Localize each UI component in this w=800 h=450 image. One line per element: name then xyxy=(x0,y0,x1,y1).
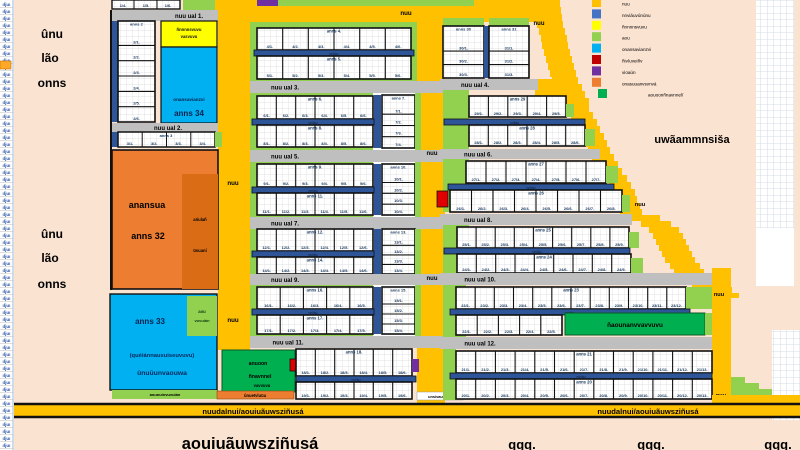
svg-text:ıİjuı: ıİjuı xyxy=(3,260,11,266)
svg-text:21/1.: 21/1. xyxy=(462,367,471,372)
svg-text:26/6.: 26/6. xyxy=(564,206,573,211)
svg-text:25/2.: 25/2. xyxy=(481,242,490,247)
svg-text:4/5.: 4/5. xyxy=(369,44,376,49)
svg-text:1/4.: 1/4. xyxy=(120,3,127,8)
svg-text:14/1.: 14/1. xyxy=(262,268,271,273)
svg-text:ıİjuı: ıİjuı xyxy=(3,274,11,280)
svg-text:25/6.: 25/6. xyxy=(558,242,567,247)
svg-text:10/2.: 10/2. xyxy=(394,187,403,192)
svg-text:nniiàu: nniiàu xyxy=(532,250,541,254)
svg-text:ıİjuı: ıİjuı xyxy=(3,253,11,259)
svg-text:8/6.: 8/6. xyxy=(360,141,367,146)
svg-text:onansavianzvi: onansavianzvi xyxy=(173,97,204,102)
svg-text:anns 14.: anns 14. xyxy=(307,258,324,263)
svg-text:19/4.: 19/4. xyxy=(359,393,368,398)
svg-text:17/2.: 17/2. xyxy=(287,328,296,333)
svg-text:nniiàu: nniiàu xyxy=(526,186,535,190)
svg-text:anns 25: anns 25 xyxy=(535,228,551,233)
svg-text:ıİjuı: ıİjuı xyxy=(3,8,11,14)
svg-text:nuu ual 5.: nuu ual 5. xyxy=(271,154,299,160)
svg-text:2/6.: 2/6. xyxy=(133,116,140,121)
svg-text:lão: lão xyxy=(41,251,58,265)
svg-text:vavvuvu: vavvuvu xyxy=(254,383,271,388)
svg-text:ñnnnnsvuvu: ñnnnnsvuvu xyxy=(622,24,647,29)
svg-text:nuu: nuu xyxy=(427,151,438,157)
svg-text:ıİjuı: ıİjuı xyxy=(3,106,11,112)
svg-text:21/2.: 21/2. xyxy=(481,367,490,372)
svg-text:nuu: nuu xyxy=(534,21,545,27)
svg-text:anns 3: anns 3 xyxy=(160,133,173,138)
svg-text:anns 10.: anns 10. xyxy=(390,165,406,170)
svg-text:24/8.: 24/8. xyxy=(598,267,607,272)
svg-text:nniiàu: nniiàu xyxy=(308,253,317,257)
svg-text:19/3.: 19/3. xyxy=(340,393,349,398)
svg-text:3/4.: 3/4. xyxy=(200,141,207,146)
svg-text:ıİjuı: ıİjuı xyxy=(3,190,11,196)
svg-text:4/4.: 4/4. xyxy=(344,44,351,49)
svg-text:21/10.: 21/10. xyxy=(638,367,649,372)
svg-text:5/5.: 5/5. xyxy=(369,73,376,78)
svg-text:ûnu: ûnu xyxy=(41,227,63,241)
svg-text:ıİjuı: ıİjuı xyxy=(3,442,11,448)
svg-text:20/5.: 20/5. xyxy=(540,393,549,398)
svg-text:ûnuūunvaouwa: ûnuūunvaouwa xyxy=(137,370,187,377)
svg-text:25/5.: 25/5. xyxy=(539,242,548,247)
svg-text:lão: lão xyxy=(41,51,58,65)
svg-text:ıİjuı: ıİjuı xyxy=(3,162,11,168)
svg-text:nuu ual 7.: nuu ual 7. xyxy=(271,221,299,227)
svg-text:2/5.: 2/5. xyxy=(133,101,140,106)
svg-text:anuoon: anuoon xyxy=(249,361,268,367)
svg-text:anns 9.: anns 9. xyxy=(308,165,322,170)
svg-text:17/4.: 17/4. xyxy=(334,328,343,333)
svg-text:anns 33: anns 33 xyxy=(135,317,165,326)
svg-text:ıİjuı: ıİjuı xyxy=(3,421,11,427)
svg-text:18/6.: 18/6. xyxy=(398,370,407,375)
svg-text:26/3.: 26/3. xyxy=(499,206,508,211)
svg-text:9/6.: 9/6. xyxy=(360,181,367,186)
svg-text:anns 15.: anns 15. xyxy=(390,288,406,293)
svg-text:anns 23: anns 23 xyxy=(563,288,579,293)
svg-text:(quéiánnausuiseuvuvu): (quéiánnausuiseuvuvu) xyxy=(130,353,195,359)
svg-text:ıİjuı: ıİjuı xyxy=(3,232,11,238)
svg-text:16/4.: 16/4. xyxy=(334,303,343,308)
svg-text:18/4.: 18/4. xyxy=(359,370,368,375)
svg-text:anns 30: anns 30 xyxy=(456,27,472,32)
svg-text:nuu ual 6.: nuu ual 6. xyxy=(464,152,492,158)
svg-text:nuu: nuu xyxy=(427,276,438,282)
svg-text:2/2.: 2/2. xyxy=(133,55,140,60)
svg-text:7/3.: 7/3. xyxy=(395,131,402,136)
svg-text:25/8.: 25/8. xyxy=(596,242,605,247)
svg-text:vioaún: vioaún xyxy=(622,70,636,75)
svg-text:9/3.: 9/3. xyxy=(302,181,309,186)
svg-text:20/9.: 20/9. xyxy=(619,393,628,398)
svg-text:ıİjuı: ıİjuı xyxy=(3,22,11,28)
svg-text:22/3.: 22/3. xyxy=(505,329,514,334)
svg-text:17/3.: 17/3. xyxy=(311,328,320,333)
svg-text:22/2.: 22/2. xyxy=(483,329,492,334)
svg-text:17/1.: 17/1. xyxy=(264,328,273,333)
svg-text:nnviáuvúnúnu: nnviáuvúnúnu xyxy=(622,13,651,18)
svg-text:13/2.: 13/2. xyxy=(394,249,403,254)
svg-text:ûnu: ûnu xyxy=(41,27,63,41)
svg-text:14/6.: 14/6. xyxy=(359,268,368,273)
svg-text:ıİjuı: ıİjuı xyxy=(3,316,11,322)
svg-text:ıİjuı: ıİjuı xyxy=(3,92,11,98)
svg-text:25/3.: 25/3. xyxy=(500,242,509,247)
svg-text:25/7.: 25/7. xyxy=(577,242,586,247)
svg-text:26/7.: 26/7. xyxy=(585,206,594,211)
svg-text:8/5.: 8/5. xyxy=(341,141,348,146)
svg-text:4/1.: 4/1. xyxy=(267,44,274,49)
svg-text:onns: onns xyxy=(38,76,67,90)
svg-text:19/6.: 19/6. xyxy=(398,393,407,398)
svg-text:23/2.: 23/2. xyxy=(480,303,489,308)
svg-text:ıİjuı: ıİjuı xyxy=(3,148,11,154)
svg-text:23/1.: 23/1. xyxy=(461,303,470,308)
svg-text:ıİjuı: ıİjuı xyxy=(3,15,11,21)
svg-text:31/3.: 31/3. xyxy=(505,72,514,77)
svg-text:nuu ual 8.: nuu ual 8. xyxy=(464,218,492,224)
svg-text:15/1.: 15/1. xyxy=(394,298,403,303)
svg-text:16/3.: 16/3. xyxy=(311,303,320,308)
svg-text:30/1.: 30/1. xyxy=(459,45,468,50)
svg-text:12/1.: 12/1. xyxy=(262,245,271,250)
svg-text:ıİjuı: ıİjuı xyxy=(3,435,11,441)
svg-text:19/2.: 19/2. xyxy=(321,393,330,398)
svg-text:29/1.: 29/1. xyxy=(474,111,483,116)
svg-text:anns 21: anns 21 xyxy=(576,352,592,357)
svg-text:21/6.: 21/6. xyxy=(560,367,569,372)
svg-text:8/1.: 8/1. xyxy=(263,141,270,146)
svg-text:22/4.: 22/4. xyxy=(526,329,535,334)
svg-text:nniiàu: nniiàu xyxy=(308,189,317,193)
svg-text:6/2.: 6/2. xyxy=(283,113,290,118)
svg-text:19/1.: 19/1. xyxy=(301,393,310,398)
svg-text:24/7.: 24/7. xyxy=(578,267,587,272)
svg-text:anns 28: anns 28 xyxy=(519,126,535,131)
svg-text:29/2.: 29/2. xyxy=(494,111,503,116)
svg-text:19/5.: 19/5. xyxy=(379,393,388,398)
svg-text:18/5.: 18/5. xyxy=(379,370,388,375)
svg-text:6/5.: 6/5. xyxy=(341,113,348,118)
svg-text:nuu: nuu xyxy=(400,10,412,17)
svg-text:28/1.: 28/1. xyxy=(474,140,483,145)
svg-text:11/6.: 11/6. xyxy=(359,209,367,214)
svg-text:ıİjuı: ıİjuı xyxy=(3,218,11,224)
svg-text:27/6.: 27/6. xyxy=(572,177,581,182)
svg-text:aouoonñnavnnel/: aouoonñnavnnel/ xyxy=(648,93,684,98)
svg-text:21/12.: 21/12. xyxy=(677,367,688,372)
svg-text:13/4.: 13/4. xyxy=(394,268,403,273)
svg-text:23/9.: 23/9. xyxy=(615,303,624,308)
svg-text:nuudalnui/aouiuãuwsziñusá: nuudalnui/aouiuãuwsziñusá xyxy=(597,407,699,416)
svg-text:12/6.: 12/6. xyxy=(359,245,368,250)
svg-text:nuu ual 3.: nuu ual 3. xyxy=(271,85,299,91)
svg-text:anns 31: anns 31 xyxy=(502,27,518,32)
svg-text:28/3.: 28/3. xyxy=(513,140,522,145)
svg-text:18/3.: 18/3. xyxy=(340,370,349,375)
svg-text:ıİjuı: ıİjuı xyxy=(3,36,11,42)
svg-text:23/8.: 23/8. xyxy=(595,303,604,308)
svg-text:28/5.: 28/5. xyxy=(552,140,561,145)
svg-text:anns 32: anns 32 xyxy=(131,231,165,241)
svg-text:26/4.: 26/4. xyxy=(521,206,530,211)
svg-text:ıİjuı: ıİjuı xyxy=(3,78,11,84)
svg-text:anns 7.: anns 7. xyxy=(392,96,406,101)
svg-text:23/12.: 23/12. xyxy=(671,303,682,308)
svg-text:5/3.: 5/3. xyxy=(318,73,325,78)
svg-text:qqq.: qqq. xyxy=(508,437,535,450)
svg-text:anansua: anansua xyxy=(129,200,167,210)
svg-text:ıİjuı: ıİjuı xyxy=(3,344,11,350)
svg-text:vuvuián: vuvuián xyxy=(194,318,210,323)
svg-text:ûnueīvluūa: ûnueīvluūa xyxy=(244,393,267,398)
svg-text:ıİjuı: ıİjuı xyxy=(3,183,11,189)
svg-text:ıİjuı: ıİjuı xyxy=(3,295,11,301)
svg-text:ıİjuı: ıİjuı xyxy=(3,127,11,133)
svg-text:nniiàu: nniiàu xyxy=(308,311,317,315)
svg-text:24/3.: 24/3. xyxy=(501,267,510,272)
svg-text:31/1.: 31/1. xyxy=(505,45,514,50)
svg-text:ıİjuı: ıİjuı xyxy=(3,358,11,364)
svg-text:onasuuanvsvnvá: onasuuanvsvnvá xyxy=(622,81,657,86)
svg-text:aouiuãuwsziñusá: aouiuãuwsziñusá xyxy=(182,435,319,450)
svg-text:6/4.: 6/4. xyxy=(321,113,328,118)
svg-text:24/5.: 24/5. xyxy=(540,267,549,272)
svg-text:vasvuvu: vasvuvu xyxy=(181,34,198,39)
svg-text:anns 6.: anns 6. xyxy=(308,97,322,102)
svg-text:aou: aou xyxy=(622,36,630,41)
svg-text:nuu: nuu xyxy=(622,2,630,7)
svg-text:18/1.: 18/1. xyxy=(301,370,310,375)
svg-text:11/4.: 11/4. xyxy=(320,209,328,214)
svg-text:ıİjuı: ıİjuı xyxy=(3,43,11,49)
svg-text:ūsuaní: ūsuaní xyxy=(193,248,207,253)
svg-text:28/2.: 28/2. xyxy=(494,140,503,145)
svg-text:5/6.: 5/6. xyxy=(395,73,402,78)
svg-text:ıİjuı: ıİjuı xyxy=(3,211,11,217)
svg-text:ıİjuı: ıİjuı xyxy=(3,365,11,371)
svg-text:nuu: nuu xyxy=(227,180,239,187)
svg-text:ıİjuı: ıİjuı xyxy=(3,337,11,343)
svg-text:9/2.: 9/2. xyxy=(283,181,290,186)
svg-text:10/4.: 10/4. xyxy=(394,209,403,214)
svg-text:ıİjuı: ıİjuı xyxy=(3,197,11,203)
svg-text:25/4.: 25/4. xyxy=(520,242,529,247)
svg-text:ıİjuı: ıİjuı xyxy=(3,281,11,287)
svg-text:anns 11.: anns 11. xyxy=(307,194,324,199)
svg-text:20/12.: 20/12. xyxy=(677,393,688,398)
svg-text:anns 24: anns 24 xyxy=(536,255,552,260)
svg-text:2/1.: 2/1. xyxy=(133,40,140,45)
svg-text:ıİjuı: ıİjuı xyxy=(3,386,11,392)
svg-text:20/3.: 20/3. xyxy=(501,393,510,398)
svg-text:24/4.: 24/4. xyxy=(520,267,529,272)
svg-text:ñivíuveiñv: ñivíuveiñv xyxy=(622,59,643,64)
svg-text:ıİjuı: ıİjuı xyxy=(3,85,11,91)
svg-text:5/4.: 5/4. xyxy=(344,73,351,78)
svg-text:nuu ual 11.: nuu ual 11. xyxy=(272,340,303,346)
svg-text:29/3.: 29/3. xyxy=(513,111,522,116)
svg-text:28/6.: 28/6. xyxy=(571,140,580,145)
svg-text:ıİjuı: ıİjuı xyxy=(3,379,11,385)
svg-text:anns 16.: anns 16. xyxy=(307,288,324,293)
svg-text:13/3.: 13/3. xyxy=(394,258,403,263)
svg-text:anns 26: anns 26 xyxy=(528,191,544,196)
svg-text:25/1.: 25/1. xyxy=(462,242,471,247)
svg-text:anns 13.: anns 13. xyxy=(390,230,406,235)
svg-text:14/2.: 14/2. xyxy=(282,268,291,273)
svg-text:27/5.: 27/5. xyxy=(552,177,561,182)
svg-text:9/1.: 9/1. xyxy=(263,181,270,186)
svg-text:8/2.: 8/2. xyxy=(283,141,290,146)
svg-text:7/2.: 7/2. xyxy=(395,119,402,124)
svg-text:ıİjuı: ıİjuı xyxy=(3,99,11,105)
svg-text:15/3.: 15/3. xyxy=(394,318,403,323)
svg-text:10/1.: 10/1. xyxy=(394,177,403,182)
svg-text:14/5.: 14/5. xyxy=(340,268,349,273)
svg-text:ıİjuı: ıİjuı xyxy=(3,1,11,7)
svg-text:ıİjuı: ıİjuı xyxy=(3,400,11,406)
svg-text:17/5.: 17/5. xyxy=(357,328,366,333)
svg-text:ıİjuı: ıİjuı xyxy=(3,246,11,252)
svg-text:ańulañ: ańulañ xyxy=(193,217,207,222)
svg-text:12/4.: 12/4. xyxy=(320,245,329,250)
svg-text:2/4.: 2/4. xyxy=(133,85,140,90)
svg-text:2/3.: 2/3. xyxy=(133,70,140,75)
svg-text:12/5.: 12/5. xyxy=(340,245,349,250)
svg-text:5/1.: 5/1. xyxy=(267,73,274,78)
svg-text:ıİjuı: ıİjuı xyxy=(3,120,11,126)
svg-text:27/2.: 27/2. xyxy=(492,177,501,182)
svg-text:ıİjuı: ıİjuı xyxy=(3,29,11,35)
svg-text:23/3.: 23/3. xyxy=(500,303,509,308)
svg-text:21/8.: 21/8. xyxy=(599,367,608,372)
svg-text:ıİjuı: ıİjuı xyxy=(3,323,11,329)
svg-text:24/6.: 24/6. xyxy=(559,267,568,272)
svg-text:nuu ual 10.: nuu ual 10. xyxy=(464,277,496,283)
svg-text:6/6.: 6/6. xyxy=(360,113,367,118)
svg-text:20/8.: 20/8. xyxy=(599,393,608,398)
svg-text:5/2.: 5/2. xyxy=(292,73,299,78)
svg-text:14/3.: 14/3. xyxy=(301,268,310,273)
svg-text:22/1.: 22/1. xyxy=(462,329,471,334)
svg-text:anns 29: anns 29 xyxy=(510,97,526,102)
svg-text:20/11.: 20/11. xyxy=(657,393,668,398)
svg-text:26/2.: 26/2. xyxy=(478,206,487,211)
svg-text:anns 34: anns 34 xyxy=(174,109,204,118)
svg-text:ñaounanvvavvuvu: ñaounanvvavvuvu xyxy=(607,322,663,329)
svg-text:anns 4.: anns 4. xyxy=(327,29,341,34)
svg-text:4/3.: 4/3. xyxy=(318,44,325,49)
svg-text:20/7.: 20/7. xyxy=(580,393,589,398)
svg-text:nuu ual 4.: nuu ual 4. xyxy=(461,83,489,89)
svg-text:onns: onns xyxy=(38,277,67,291)
svg-text:uwãammnsiša: uwãammnsiša xyxy=(654,134,730,146)
svg-text:ıİjuı: ıİjuı xyxy=(3,393,11,399)
svg-text:27/3.: 27/3. xyxy=(512,177,521,182)
svg-text:nniiàu: nniiàu xyxy=(576,375,585,379)
svg-text:anns 17.: anns 17. xyxy=(307,316,324,321)
svg-text:nuu: nuu xyxy=(635,202,646,208)
svg-text:15/4.: 15/4. xyxy=(394,328,403,333)
svg-text:3/2.: 3/2. xyxy=(151,141,158,146)
svg-text:26/1.: 26/1. xyxy=(456,206,465,211)
svg-text:3/1.: 3/1. xyxy=(127,141,134,146)
svg-text:22/5.: 22/5. xyxy=(547,329,556,334)
svg-text:ıİjuı: ıİjuı xyxy=(3,428,11,434)
svg-text:ıİjuı: ıİjuı xyxy=(3,239,11,245)
svg-text:4/6.: 4/6. xyxy=(395,44,402,49)
svg-text:27/1.: 27/1. xyxy=(472,177,481,182)
svg-text:ıİjuı: ıİjuı xyxy=(3,309,11,315)
svg-text:16/5.: 16/5. xyxy=(357,303,366,308)
svg-text:ıİjuı: ıİjuı xyxy=(3,302,11,308)
svg-text:20/4.: 20/4. xyxy=(521,393,530,398)
svg-text:nuu ual 12.: nuu ual 12. xyxy=(464,341,496,347)
svg-text:21/9.: 21/9. xyxy=(619,367,628,372)
svg-text:nuu ual 1.: nuu ual 1. xyxy=(175,14,203,20)
svg-text:21/4.: 21/4. xyxy=(521,367,530,372)
svg-text:1/5.: 1/5. xyxy=(143,3,150,8)
svg-text:12/3.: 12/3. xyxy=(301,245,310,250)
svg-text:20/10.: 20/10. xyxy=(638,393,649,398)
svg-text:24/9.: 24/9. xyxy=(617,267,626,272)
svg-text:23/7.: 23/7. xyxy=(576,303,585,308)
svg-text:ñnnnnsvuvu: ñnnnnsvuvu xyxy=(177,27,202,32)
svg-text:ıİjuı: ıİjuı xyxy=(3,267,11,273)
svg-text:ıİjuı: ıİjuı xyxy=(3,155,11,161)
svg-text:ıİjuı: ıİjuı xyxy=(3,407,11,413)
svg-text:ıİjuı: ıİjuı xyxy=(3,351,11,357)
svg-text:30/3.: 30/3. xyxy=(459,72,468,77)
svg-text:21/7.: 21/7. xyxy=(580,367,589,372)
svg-text:1/6.: 1/6. xyxy=(165,3,172,8)
svg-text:ñnavnnel: ñnavnnel xyxy=(249,374,272,380)
svg-text:21/13.: 21/13. xyxy=(697,367,708,372)
svg-text:21/3.: 21/3. xyxy=(501,367,510,372)
svg-text:12/2.: 12/2. xyxy=(282,245,291,250)
svg-text:3/3.: 3/3. xyxy=(175,141,182,146)
svg-text:9/4.: 9/4. xyxy=(321,181,328,186)
svg-text:ıİjuı: ıİjuı xyxy=(3,50,11,56)
svg-text:6/3.: 6/3. xyxy=(302,113,309,118)
svg-text:21/5.: 21/5. xyxy=(540,367,549,372)
svg-text:20/6.: 20/6. xyxy=(560,393,569,398)
svg-text:ıİjuı: ıİjuı xyxy=(3,414,11,420)
svg-text:8/4.: 8/4. xyxy=(321,141,328,146)
svg-text:ıİjuı: ıİjuı xyxy=(3,113,11,119)
svg-text:13/1.: 13/1. xyxy=(394,240,403,245)
svg-text:nuu: nuu xyxy=(714,292,725,298)
svg-text:aounuinvuvuián: aounuinvuvuián xyxy=(150,392,181,397)
svg-text:29/4.: 29/4. xyxy=(533,111,542,116)
svg-text:25/9.: 25/9. xyxy=(615,242,624,247)
svg-text:nniiàu: nniiàu xyxy=(351,378,360,382)
svg-text:24/1.: 24/1. xyxy=(462,267,471,272)
svg-text:anns 18.: anns 18. xyxy=(346,350,363,355)
svg-text:29/5.: 29/5. xyxy=(552,111,561,116)
svg-text:23/6.: 23/6. xyxy=(557,303,566,308)
svg-text:anns 27: anns 27 xyxy=(528,162,544,167)
svg-text:qqq.: qqq. xyxy=(764,437,791,450)
svg-text:ıİjuı: ıİjuı xyxy=(3,225,11,231)
svg-text:11/1.: 11/1. xyxy=(262,209,270,214)
svg-text:31/2.: 31/2. xyxy=(505,59,514,64)
svg-text:11/3.: 11/3. xyxy=(301,209,309,214)
